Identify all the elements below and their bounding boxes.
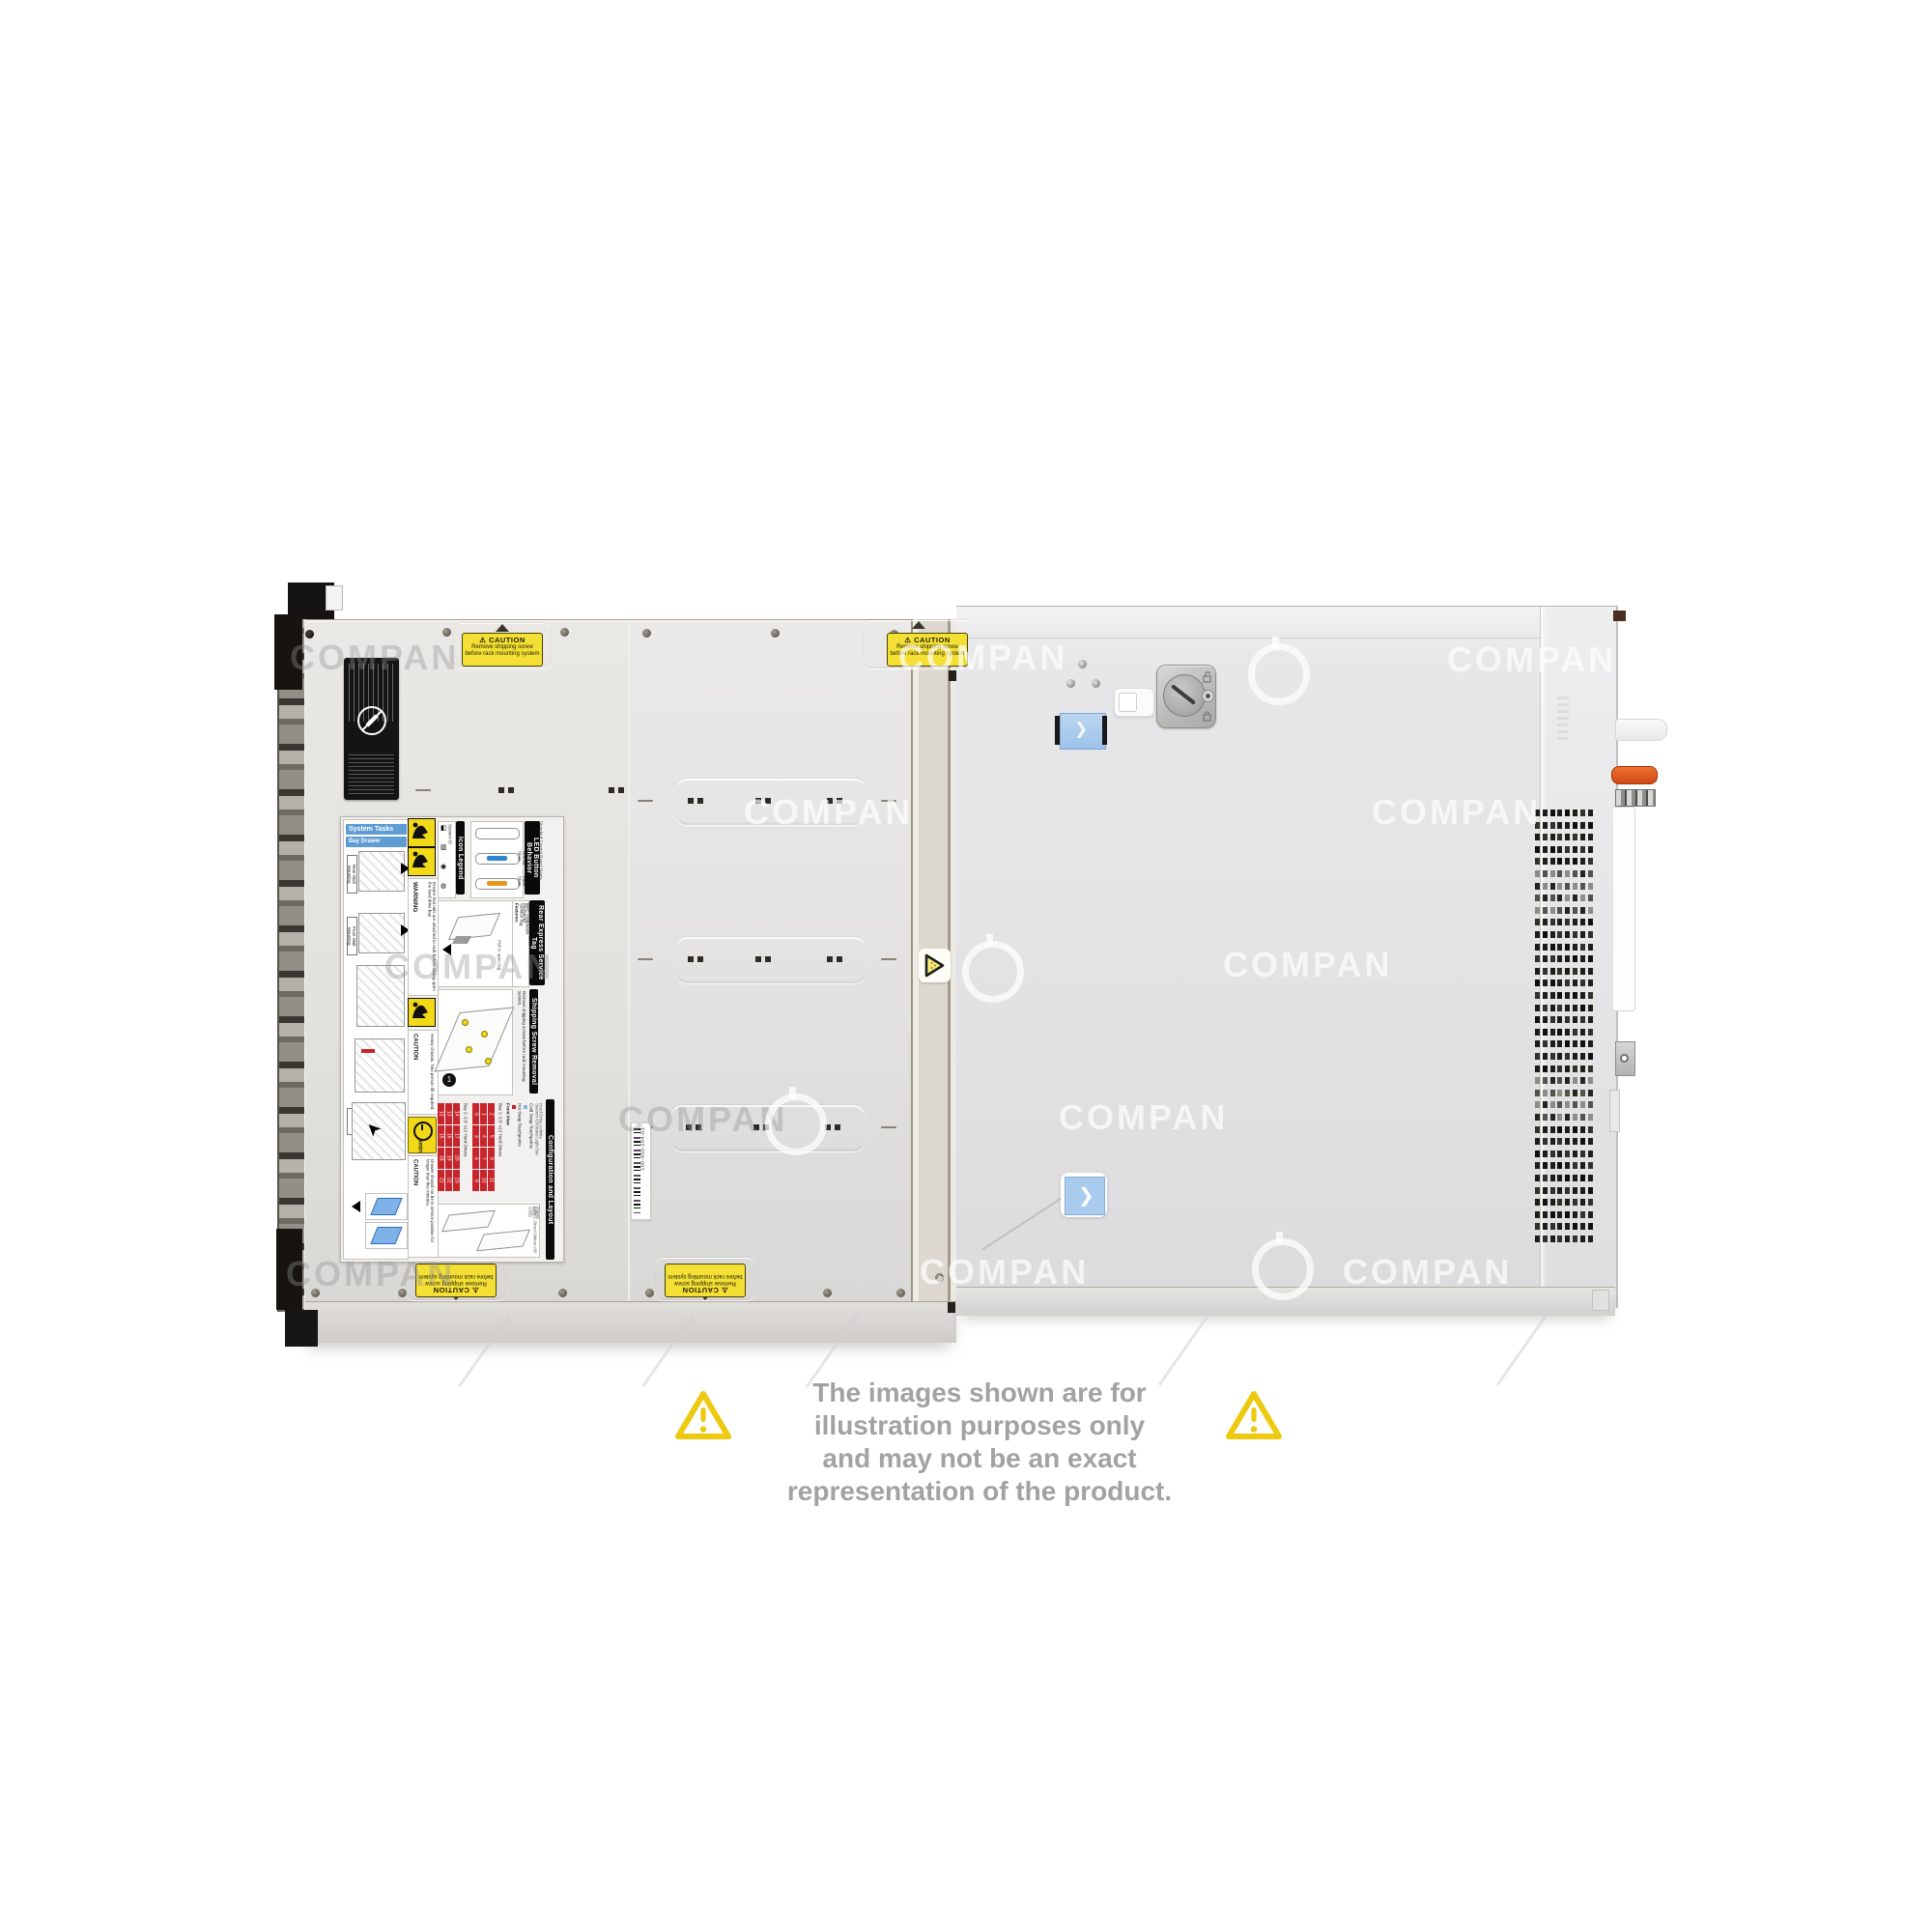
icon-legend-icons: ◧ System ID ▥ ◉ ◍ [438, 821, 456, 898]
screw-hole [311, 1289, 320, 1297]
barcode-number: 100-400-294-03 [640, 1127, 646, 1171]
service-tag-diagram: Pull to open tag [438, 900, 513, 987]
drive-slot-number: 6 [472, 1148, 479, 1169]
caution-sticker-top-front: ⚠ CAUTION Remove shipping screw before r… [462, 633, 543, 667]
warning-triangle-icon: ⚠ [479, 636, 486, 644]
screw-dot [466, 1046, 472, 1053]
caution-heavy-label: CAUTION Heavy chassis. Two person lift r… [408, 1030, 439, 1115]
blue-bay-shape [370, 1198, 402, 1215]
chassis-corner-notch [1592, 1290, 1609, 1311]
drive-slot-number: 9 [472, 1170, 479, 1191]
warning-triangle-icon: ⚠ [904, 636, 911, 644]
screw-hole [305, 630, 314, 639]
screw-dot [462, 1019, 469, 1026]
plate-tab [496, 624, 509, 632]
drive-slot-number: 17 [453, 1125, 460, 1147]
icon-legend-header: Icon Legend [456, 821, 465, 895]
mounting-diagram [358, 913, 405, 953]
drive-slot-number: 18 [438, 1148, 444, 1169]
bay-drawer-header: Bay Drawer Operation [346, 837, 407, 847]
bay-sketch [441, 1210, 496, 1233]
warning-heading: WARNING [411, 882, 417, 912]
rivet-pair [686, 1124, 701, 1130]
top-cover-rear-section [956, 606, 1540, 1308]
drive-slot-number: 0 [472, 1103, 479, 1124]
shipping-header: Shipping Screw Removal [529, 989, 538, 1094]
hard-drive-activity-icon: ◉ [440, 863, 446, 870]
front-bezel-drive-handles [277, 614, 305, 1312]
screw-hole [442, 628, 451, 637]
blue-bay-shape [370, 1227, 402, 1244]
screw-hole [558, 1289, 567, 1297]
open-direction-sticker: ❯ [1061, 1173, 1107, 1217]
cold-swap-color-key [524, 1105, 527, 1109]
pinch-hazard-icon [408, 818, 436, 847]
drive-slot-number: 10 [480, 1170, 487, 1191]
screw-hole [645, 1289, 654, 1297]
pinch-hazard-icon [408, 847, 436, 876]
warning-triangle-icon: ⚠ [472, 1286, 479, 1294]
scribe-mark [881, 1126, 896, 1128]
regulatory-text-block [349, 752, 394, 794]
cover-keylock[interactable] [1156, 665, 1216, 728]
shipping-body: Remove shipping screws before rack mount… [514, 991, 526, 1092]
bay2-label: Bay 2: 3.5" x12 Hard Drives [463, 1103, 468, 1196]
layout-isometric-diagram: iDRAC Direct (Micro-AB USB) USB Power [438, 1204, 540, 1258]
rail-diagram [356, 965, 405, 1027]
divider-pin [949, 670, 956, 681]
arrow-wedge-icon [442, 944, 451, 955]
led-behavior-graphics: Normal State Fault State [470, 821, 524, 898]
arrow-wedge-icon [352, 1201, 360, 1212]
scribe-mark [638, 958, 653, 960]
divider-warning-sticker [919, 949, 951, 982]
cold-swap-label: Cold Swap Touchpoints [528, 1103, 533, 1196]
drive-slot-number: 21 [438, 1170, 444, 1191]
drive-slot-number: 23 [453, 1170, 460, 1191]
screw-hole [935, 1273, 944, 1282]
config-legend-item: Hard Drive Activity [538, 1103, 543, 1196]
system-id-icon: ◧ [440, 824, 447, 832]
instruction-label-panel: System Tasks Bay Drawer Operation Rear W… [340, 816, 564, 1263]
configuration-header: Configuration and Layout [546, 1099, 554, 1260]
psu-release-latch[interactable] [1611, 766, 1658, 784]
shipping-screw-diagram: 1 [438, 989, 513, 1095]
cover-release-slider[interactable] [1114, 688, 1154, 717]
barcode-stripes [634, 1128, 640, 1213]
system-tasks-label: System Tasks Bay Drawer Operation Rear W… [343, 819, 409, 1260]
scribe-mark [415, 789, 431, 791]
screw-hole [642, 629, 651, 638]
warning-triangle-icon: ⚠ [722, 1286, 728, 1294]
rivet-pair [688, 956, 703, 962]
caution-sticker-bottom-front: ⚠ CAUTION Remove shipping screw before r… [415, 1264, 497, 1297]
drawer-diagram [355, 1038, 405, 1093]
divider-pin [948, 1302, 955, 1313]
rivet [1066, 679, 1075, 688]
slide-open-diagram: ➤ [352, 1102, 406, 1160]
service-tag-header: Rear Express Service Tag [529, 900, 545, 985]
five-minute-limit-badge: 5min [408, 1117, 437, 1153]
drive-slot-number: 13 [445, 1103, 452, 1124]
drive-slot-number: 14 [453, 1103, 460, 1124]
drive-slot-number: 7 [480, 1148, 487, 1169]
bay-sketch [476, 1230, 530, 1252]
rivet-pair [825, 1124, 840, 1130]
chevron-right-icon: ❯ [1078, 1183, 1094, 1207]
rivet [1078, 660, 1087, 668]
rivet-pair [755, 798, 771, 804]
arrow-icon: ➤ [361, 1117, 386, 1142]
chassis-side-right [956, 1287, 1615, 1316]
rivet-pair [498, 787, 514, 793]
product-photo-canvas: ⚠ CAUTION Remove shipping screw before r… [0, 0, 1932, 1932]
drive-slot-number: 5 [488, 1125, 495, 1147]
screw-hole [771, 629, 780, 638]
led-subtitle: Standard Control Panel Status [538, 821, 543, 895]
rear-bracket [1615, 1041, 1635, 1076]
rack-ear-latch [326, 585, 343, 611]
screw-hole [896, 1289, 905, 1297]
chassis-sketch [434, 1007, 514, 1071]
scribe-mark [881, 800, 896, 802]
unlocked-icon [1202, 671, 1213, 683]
hot-swap-color-key [512, 1105, 516, 1109]
barcode-label: 100-400-294-03 [631, 1122, 651, 1220]
rivet [1092, 679, 1100, 688]
rear-wall-mounting-tag: Rear Wall Mounting [347, 855, 357, 894]
caution-heading: CAUTION [412, 1034, 417, 1060]
rear-cover-lip [956, 607, 1615, 639]
drive-slot-number: 19 [445, 1148, 452, 1169]
drive-slot-number: 3 [472, 1125, 479, 1147]
front-bezel-dark-bottom [276, 1229, 302, 1310]
red-touchpoint [361, 1049, 375, 1053]
watermark-slash [1158, 1311, 1211, 1385]
rivet-pair [609, 787, 624, 793]
identify-icon: ◍ [440, 882, 446, 890]
screw-dot [485, 1058, 492, 1065]
warning-triangle-icon [673, 1388, 733, 1442]
caution-heavy-body: Heavy chassis. Two person lift required. [421, 1034, 434, 1111]
drive-slot-number: 12 [438, 1103, 444, 1124]
caution-sticker-top-mid: ⚠ CAUTION Remove shipping screw before r… [887, 633, 968, 667]
lock-pin [1202, 690, 1214, 702]
disclaimer-line-2: and may not be an exact representation o… [744, 1442, 1215, 1508]
rivet-pair [753, 1124, 769, 1130]
drive-slot-number: 4 [480, 1125, 487, 1147]
rear-edge-plate [1613, 807, 1635, 1011]
bay-illustration [365, 1193, 408, 1220]
front-bezel-dark-top [274, 614, 302, 690]
drive-slot-number: 11 [488, 1170, 495, 1191]
rear-tab [1609, 1090, 1620, 1132]
plate-tab [912, 621, 925, 629]
screw-hole [560, 628, 569, 637]
rack-ear-bottom [285, 1310, 318, 1347]
hot-swap-label: Hot Swap Touchpoints [517, 1103, 522, 1196]
chevron-right-icon: ❯ [1074, 720, 1088, 739]
scribe-mark [638, 800, 653, 802]
caution-sticker-bottom-mid: ⚠ CAUTION Remove shipping screw before r… [665, 1264, 746, 1297]
pull-to-open-label: Pull to open tag [497, 940, 501, 982]
locked-icon [1202, 710, 1213, 722]
rear-metal-clip [1615, 789, 1656, 807]
bracket-hole [1620, 1054, 1629, 1063]
disclaimer-text: The images shown are for illustration pu… [744, 1377, 1215, 1508]
warning-body: Ensure that rails are attached to rack b… [420, 882, 436, 992]
caution-drawer-label: CAUTION Drawer should not be in service … [408, 1155, 439, 1258]
drive-slot-number: 1 [480, 1103, 487, 1124]
no-tip-icon [355, 704, 388, 737]
scribe-mark [881, 958, 896, 960]
rear-corner-pin [1613, 611, 1626, 621]
warning-label: WARNING Ensure that rails are attached t… [408, 878, 439, 996]
bay1-label: Bay 1: 3.5" x12 Hard Drives [497, 1103, 502, 1196]
drive-slot-number: 2 [488, 1103, 495, 1124]
tag-pull [452, 936, 471, 944]
rear-handle[interactable] [1615, 719, 1667, 741]
drive-slot-number: 15 [438, 1125, 444, 1147]
front-view-label: Front View [505, 1103, 510, 1196]
idrac-direct-icon: ▥ [440, 843, 447, 851]
regulatory-label [344, 658, 399, 800]
front-wall-mounting-tag: Front Wall Mounting [347, 917, 357, 955]
rivet-pair [755, 956, 771, 962]
etched-marks [1557, 694, 1569, 740]
config-legend-item: Power [535, 1207, 540, 1255]
clock-icon [413, 1122, 433, 1141]
chassis-side-left [301, 1301, 956, 1343]
drive-slot-number: 22 [445, 1170, 452, 1191]
bay-illustration [365, 1222, 408, 1249]
watermark-slash [1496, 1311, 1549, 1385]
caution-drawer-body: Drawer should not be in service position… [421, 1159, 434, 1254]
sticker-clip [1102, 716, 1107, 745]
led-pill-fault [475, 878, 520, 890]
rivet-pair [688, 798, 703, 804]
sticker-clip [1055, 716, 1060, 745]
step-badge: 1 [442, 1073, 456, 1087]
five-min-text: 5min [416, 1139, 422, 1152]
release-instruction-sticker: ❯ [1060, 713, 1106, 750]
drive-slot-number: 20 [453, 1148, 460, 1169]
psu-vent-grid [1535, 810, 1597, 1248]
mounting-diagram [358, 851, 405, 892]
warning-triangle-icon [1224, 1388, 1284, 1442]
system-tasks-header: System Tasks [346, 824, 407, 835]
led-pill [475, 828, 520, 839]
screw-dot [481, 1031, 488, 1037]
led-pill-normal [475, 853, 520, 865]
rivet-pair [827, 956, 842, 962]
drive-grid-bay1: 01234567891011 [472, 1103, 495, 1191]
warning-triangle-icon [923, 952, 947, 979]
features-heading: Features: [514, 903, 519, 984]
pinch-hazard-icon [408, 998, 436, 1027]
drive-slot-number: 16 [445, 1125, 452, 1147]
icon-label: System ID [447, 824, 452, 895]
rivet-pair [827, 798, 842, 804]
drive-grid-bay2: 121314151617181920212223 [438, 1103, 460, 1191]
slider-button[interactable] [1119, 693, 1137, 712]
drive-slot-number: 8 [488, 1148, 495, 1169]
features-list: Features: Service Tag Password MAC Addre… [512, 900, 529, 987]
screw-hole [823, 1289, 832, 1297]
disclaimer-line-1: The images shown are for illustration pu… [744, 1377, 1215, 1442]
caution-heading: CAUTION [412, 1159, 417, 1185]
